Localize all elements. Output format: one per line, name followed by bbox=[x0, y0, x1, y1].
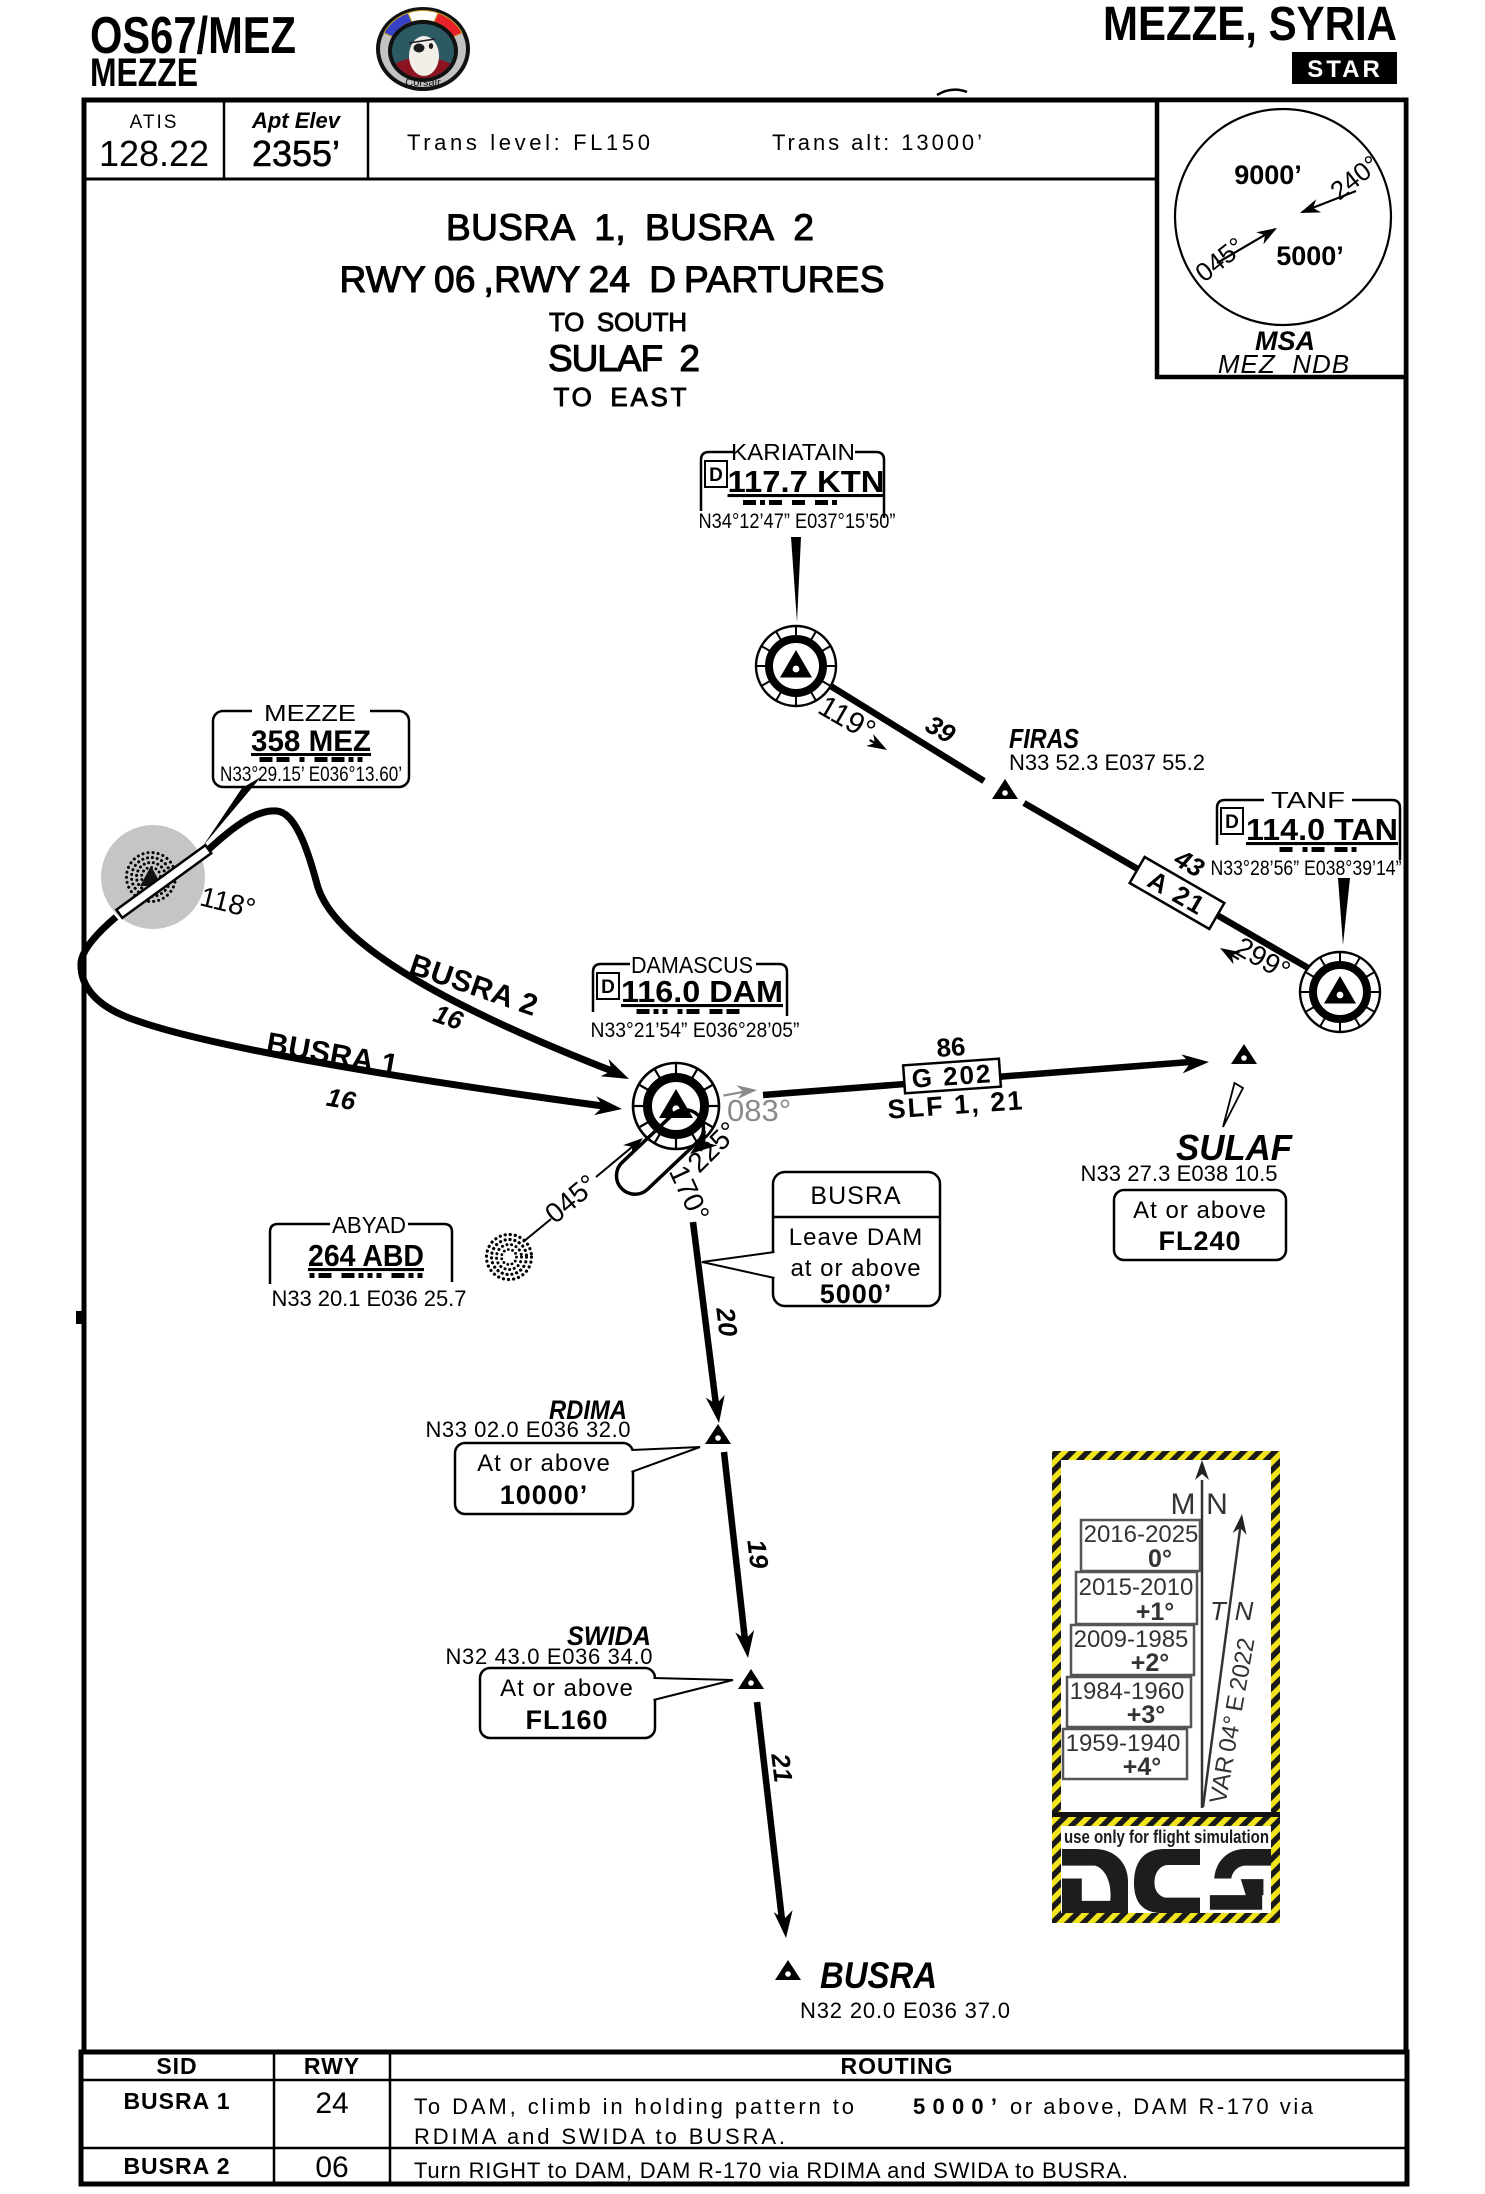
svg-text:STAR: STAR bbox=[1307, 56, 1383, 83]
svg-text:+3°: +3° bbox=[1127, 1701, 1166, 1729]
svg-text:BUSRA 1: BUSRA 1 bbox=[123, 2088, 230, 2114]
svg-text:ATIS: ATIS bbox=[130, 112, 179, 133]
svg-text:ROUTING: ROUTING bbox=[840, 2053, 953, 2079]
svg-text:N: N bbox=[1206, 1488, 1228, 1521]
svg-text:BUSRA: BUSRA bbox=[810, 1182, 901, 1210]
svg-text:BUSRA: BUSRA bbox=[820, 1955, 937, 1996]
svg-text:19: 19 bbox=[741, 1538, 774, 1571]
svg-text:0°: 0° bbox=[1148, 1545, 1172, 1573]
svg-text:SULAF 2: SULAF 2 bbox=[548, 338, 700, 379]
svg-text:N32 43.0 E036 34.0: N32 43.0 E036 34.0 bbox=[446, 1644, 653, 1669]
svg-text:use only for flight simulation: use only for flight simulation bbox=[1064, 1827, 1269, 1847]
svg-text:N: N bbox=[1235, 1596, 1254, 1626]
svg-text:at or above: at or above bbox=[790, 1255, 921, 1282]
svg-text:KARIATAIN: KARIATAIN bbox=[731, 439, 855, 465]
svg-text:N32 20.0 E036 37.0: N32 20.0 E036 37.0 bbox=[800, 1998, 1010, 2023]
svg-text:TANF: TANF bbox=[1271, 787, 1345, 813]
svg-text:86: 86 bbox=[935, 1031, 966, 1063]
svg-text:2015-2010: 2015-2010 bbox=[1079, 1574, 1194, 1601]
svg-text:TO SOUTH: TO SOUTH bbox=[549, 307, 687, 337]
svg-text:At or above: At or above bbox=[1133, 1197, 1267, 1224]
svg-text:RWY 06 ,RWY 24 D PARTURES: RWY 06 ,RWY 24 D PARTURES bbox=[340, 259, 885, 300]
svg-text:N33 52.3 E037 55.2: N33 52.3 E037 55.2 bbox=[1009, 750, 1205, 775]
svg-text:114.0 TAN: 114.0 TAN bbox=[1246, 812, 1398, 847]
svg-text:N33 02.0 E036 32.0: N33 02.0 E036 32.0 bbox=[426, 1417, 631, 1442]
svg-text:Trans level: FL150: Trans level: FL150 bbox=[407, 130, 650, 155]
svg-text:116.0 DAM: 116.0 DAM bbox=[621, 974, 783, 1009]
svg-text:At or above: At or above bbox=[477, 1450, 611, 1477]
svg-text:N33°21’54” E036°28’05”: N33°21’54” E036°28’05” bbox=[591, 1019, 800, 1042]
svg-text:2355’: 2355’ bbox=[252, 133, 340, 174]
svg-text:MEZZE, SYRIA: MEZZE, SYRIA bbox=[1103, 0, 1397, 51]
svg-text:MEZZE: MEZZE bbox=[90, 51, 198, 95]
svg-text:FL240: FL240 bbox=[1158, 1226, 1241, 1256]
svg-text:TO EAST: TO EAST bbox=[554, 382, 687, 412]
svg-text:RDIMA and SWIDA to BUSRA.: RDIMA and SWIDA to BUSRA. bbox=[414, 2124, 785, 2149]
svg-text:20: 20 bbox=[710, 1305, 743, 1339]
svg-text:SID: SID bbox=[156, 2053, 197, 2079]
svg-text:5000’: 5000’ bbox=[820, 1279, 893, 1309]
svg-text:N33°28’56” E038°39’14”: N33°28’56” E038°39’14” bbox=[1211, 857, 1402, 880]
svg-text:5000’: 5000’ bbox=[1276, 241, 1344, 271]
svg-text:D: D bbox=[709, 465, 723, 486]
svg-text:+1°: +1° bbox=[1136, 1598, 1175, 1626]
svg-text:MEZZE: MEZZE bbox=[264, 700, 356, 726]
svg-text:FL160: FL160 bbox=[525, 1705, 608, 1735]
svg-text:9000’: 9000’ bbox=[1234, 160, 1302, 190]
svg-text:D: D bbox=[1225, 812, 1239, 833]
svg-text:N33 20.1 E036 25.7: N33 20.1 E036 25.7 bbox=[272, 1286, 467, 1311]
svg-text:128.22: 128.22 bbox=[99, 133, 209, 174]
svg-text:Corsair: Corsair bbox=[405, 77, 441, 89]
svg-text:10000’: 10000’ bbox=[500, 1480, 589, 1510]
svg-text:083°: 083° bbox=[727, 1093, 791, 1128]
svg-text:358 MEZ: 358 MEZ bbox=[251, 725, 371, 758]
svg-text:Trans alt: 13000’: Trans alt: 13000’ bbox=[772, 130, 982, 155]
svg-text:N33 27.3 E038 10.5: N33 27.3 E038 10.5 bbox=[1081, 1161, 1278, 1186]
svg-text:RWY: RWY bbox=[304, 2053, 360, 2079]
svg-text:N33°29.15’ E036°13.60’: N33°29.15’ E036°13.60’ bbox=[220, 763, 402, 786]
svg-text:+2°: +2° bbox=[1131, 1649, 1170, 1677]
svg-text:Apt Elev: Apt Elev bbox=[251, 108, 342, 133]
svg-text:+4°: +4° bbox=[1123, 1753, 1162, 1781]
svg-text:117.7 KTN: 117.7 KTN bbox=[728, 464, 885, 499]
svg-text:24: 24 bbox=[315, 2087, 348, 2120]
svg-text:N34°12’47” E037°15’50”: N34°12’47” E037°15’50” bbox=[699, 510, 896, 533]
svg-text:ABYAD: ABYAD bbox=[332, 1212, 406, 1238]
svg-text:MEZ NDB: MEZ NDB bbox=[1218, 349, 1350, 379]
svg-text:At or above: At or above bbox=[500, 1675, 634, 1702]
svg-text:2016-2025: 2016-2025 bbox=[1084, 1521, 1199, 1548]
svg-text:BUSRA 2: BUSRA 2 bbox=[123, 2153, 230, 2179]
svg-text:Leave DAM: Leave DAM bbox=[789, 1224, 923, 1251]
svg-text:M: M bbox=[1171, 1488, 1196, 1521]
svg-text:06: 06 bbox=[315, 2151, 348, 2184]
svg-text:264 ABD: 264 ABD bbox=[308, 1238, 424, 1273]
svg-text:21: 21 bbox=[765, 1751, 798, 1784]
svg-text:T: T bbox=[1210, 1596, 1228, 1626]
svg-text:Turn RIGHT to DAM, DAM R-170 v: Turn RIGHT to DAM, DAM R-170 via RDIMA a… bbox=[414, 2158, 1128, 2183]
svg-text:To DAM, climb in holding patte: To DAM, climb in holding pattern to bbox=[414, 2094, 854, 2119]
svg-text:BUSRA 1, BUSRA 2: BUSRA 1, BUSRA 2 bbox=[446, 207, 814, 248]
svg-text:D: D bbox=[601, 977, 615, 998]
svg-text:16: 16 bbox=[324, 1082, 358, 1117]
